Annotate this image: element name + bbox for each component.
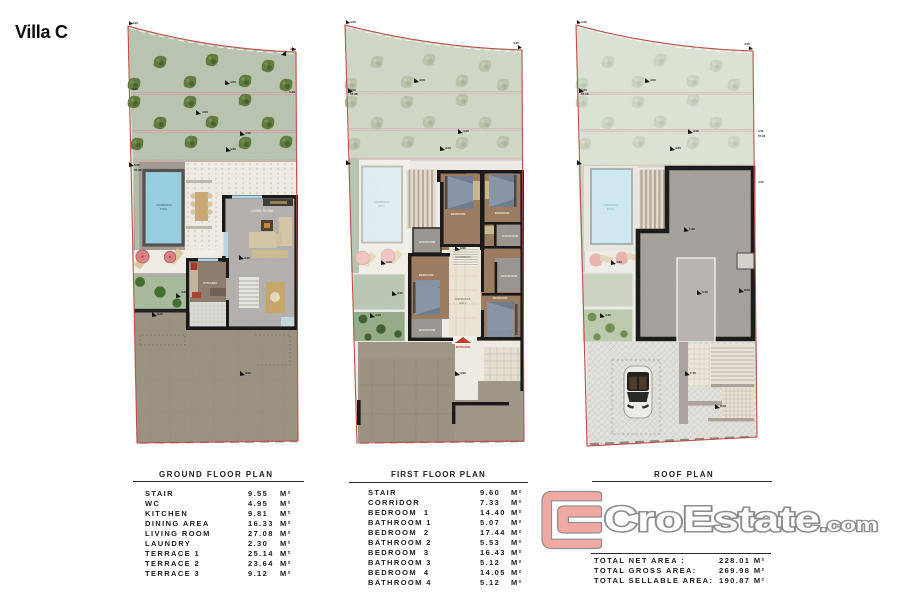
svg-text:7.70: 7.70	[690, 371, 696, 375]
svg-text:5.20: 5.20	[702, 290, 708, 294]
svg-text:4.00: 4.00	[460, 371, 466, 375]
svg-text:0.00: 0.00	[157, 312, 163, 316]
svg-text:4.00: 4.00	[132, 21, 138, 25]
svg-text:57.36: 57.36	[350, 92, 358, 96]
svg-text:4.00: 4.00	[230, 80, 236, 84]
svg-text:57.36: 57.36	[758, 134, 765, 138]
svg-text:4.00: 4.00	[419, 78, 425, 82]
svg-text:4.00: 4.00	[386, 260, 392, 264]
svg-text:8.00: 8.00	[744, 288, 750, 292]
svg-text:57.36: 57.36	[581, 92, 589, 96]
svg-text:4.00: 4.00	[202, 110, 208, 114]
svg-text:4.00: 4.00	[230, 147, 236, 151]
svg-text:7.30: 7.30	[689, 227, 695, 231]
svg-text:CroEstate: CroEstate	[604, 500, 820, 539]
svg-text:4.00: 4.00	[445, 146, 451, 150]
svg-text:5.05: 5.05	[134, 163, 140, 167]
svg-text:4.00: 4.00	[675, 146, 681, 150]
svg-text:0.00: 0.00	[720, 404, 726, 408]
svg-text:4.00: 4.00	[513, 41, 519, 45]
svg-text:4.00: 4.00	[758, 129, 764, 133]
svg-text:4.00: 4.00	[693, 129, 699, 133]
svg-text:4.00: 4.00	[581, 20, 587, 24]
svg-text:5.49: 5.49	[289, 90, 295, 94]
svg-text:.com: .com	[820, 515, 878, 535]
svg-text:4.00: 4.00	[616, 260, 622, 264]
svg-text:4.00: 4.00	[181, 290, 187, 294]
svg-text:4.00: 4.00	[245, 131, 251, 135]
svg-text:4.00: 4.00	[397, 291, 403, 295]
svg-text:4.00: 4.00	[758, 180, 764, 184]
svg-text:4.40: 4.40	[132, 87, 138, 91]
svg-text:4.00: 4.00	[744, 42, 750, 46]
svg-text:4.00: 4.00	[650, 78, 656, 82]
svg-text:4.00: 4.00	[463, 129, 469, 133]
svg-text:4.00: 4.00	[244, 256, 250, 260]
svg-text:4.00: 4.00	[245, 371, 251, 375]
svg-text:4.30: 4.30	[605, 313, 611, 317]
svg-text:4.30: 4.30	[375, 313, 381, 317]
svg-text:0.00: 0.00	[460, 246, 466, 250]
svg-text:57.36: 57.36	[134, 168, 142, 172]
svg-text:4.00: 4.00	[350, 20, 356, 24]
